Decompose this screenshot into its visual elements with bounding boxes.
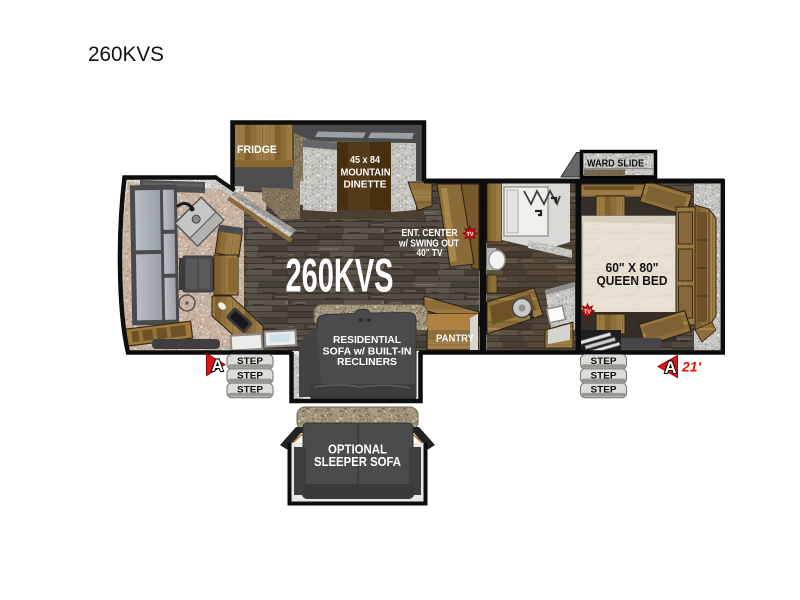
svg-text:45 x 84: 45 x 84 xyxy=(350,155,380,166)
svg-text:60" X 80": 60" X 80" xyxy=(606,261,659,275)
svg-text:SLEEPER SOFA: SLEEPER SOFA xyxy=(314,454,402,469)
svg-text:260KVS: 260KVS xyxy=(88,43,164,66)
svg-text:21': 21' xyxy=(681,359,702,375)
svg-text:PANTRY: PANTRY xyxy=(436,333,474,345)
svg-text:RESIDENTIAL: RESIDENTIAL xyxy=(333,334,402,346)
svg-text:A: A xyxy=(212,357,224,375)
svg-text:STEP: STEP xyxy=(591,370,617,380)
svg-text:QUEEN BED: QUEEN BED xyxy=(597,274,668,288)
svg-text:TV: TV xyxy=(584,310,591,316)
svg-text:RECLINERS: RECLINERS xyxy=(337,356,397,368)
svg-text:40" TV: 40" TV xyxy=(417,248,443,259)
svg-text:TV: TV xyxy=(466,232,473,238)
svg-text:FRIDGE: FRIDGE xyxy=(237,144,277,156)
svg-text:STEP: STEP xyxy=(237,356,263,366)
svg-text:A: A xyxy=(665,359,677,377)
svg-text:STEP: STEP xyxy=(591,356,617,366)
svg-text:STEP: STEP xyxy=(591,385,617,395)
svg-text:STEP: STEP xyxy=(237,385,263,395)
svg-text:WARD SLIDE: WARD SLIDE xyxy=(587,157,644,169)
svg-text:DINETTE: DINETTE xyxy=(344,180,387,191)
svg-text:260KVS: 260KVS xyxy=(286,249,394,302)
svg-text:MOUNTAIN: MOUNTAIN xyxy=(341,167,391,178)
svg-text:STEP: STEP xyxy=(237,370,263,380)
